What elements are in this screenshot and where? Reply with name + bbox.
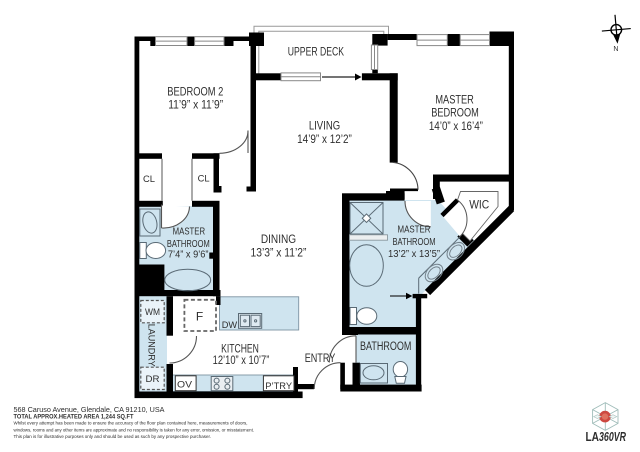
svg-text:MASTER: MASTER (173, 227, 206, 238)
svg-text:ENTRY: ENTRY (305, 353, 336, 365)
svg-text:12’10” x 10’7”: 12’10” x 10’7” (213, 355, 270, 367)
svg-text:BATHROOM: BATHROOM (393, 237, 436, 248)
svg-text:BATHROOM: BATHROOM (360, 341, 411, 353)
svg-text:BATHROOM: BATHROOM (167, 239, 210, 250)
svg-text:LIVING: LIVING (309, 121, 340, 133)
svg-text:7’4” x 9’6”: 7’4” x 9’6” (168, 250, 209, 261)
svg-text:WIC: WIC (469, 199, 489, 211)
svg-text:14’9” x 12’2”: 14’9” x 12’2” (297, 134, 352, 146)
svg-text:MASTER: MASTER (398, 225, 431, 236)
svg-text:P’TRY: P’TRY (265, 381, 293, 392)
svg-text:OV: OV (177, 379, 193, 390)
svg-text:CL: CL (198, 174, 210, 185)
svg-text:11’9” x 11’9”: 11’9” x 11’9” (168, 100, 223, 112)
svg-text:TOTAL APPROX.HEATED AREA 1,244: TOTAL APPROX.HEATED AREA 1,244 SQ.FT (14, 413, 134, 420)
svg-text:BEDROOM 2: BEDROOM 2 (167, 87, 223, 99)
svg-text:CL: CL (143, 174, 155, 185)
svg-text:14’0” x 16’4”: 14’0” x 16’4” (429, 121, 483, 133)
svg-text:MASTER: MASTER (435, 94, 474, 106)
svg-text:DR: DR (146, 374, 160, 385)
svg-text:WM: WM (145, 307, 160, 318)
svg-text:This plan is for illustrative: This plan is for illustrative purposes o… (14, 434, 212, 440)
svg-text:F: F (196, 310, 203, 324)
svg-text:UPPER DECK: UPPER DECK (288, 47, 344, 59)
svg-text:LAUNDRY: LAUNDRY (147, 324, 157, 367)
svg-text:BEDROOM: BEDROOM (431, 108, 479, 120)
svg-text:DW: DW (222, 320, 237, 331)
svg-text:KITCHEN: KITCHEN (221, 344, 259, 356)
svg-text:windows, rooms and any other i: windows, rooms and any other items are a… (14, 427, 255, 433)
svg-text:360VR: 360VR (599, 430, 626, 444)
svg-text:Whilst every attempt has been: Whilst every attempt has been made to en… (14, 421, 248, 427)
svg-text:LA: LA (586, 430, 600, 444)
svg-text:N: N (613, 46, 618, 53)
svg-text:13’3” x 11’2”: 13’3” x 11’2” (251, 248, 307, 260)
svg-text:13’2” x 13’5”: 13’2” x 13’5” (388, 249, 440, 260)
svg-text:DINING: DINING (261, 234, 296, 246)
